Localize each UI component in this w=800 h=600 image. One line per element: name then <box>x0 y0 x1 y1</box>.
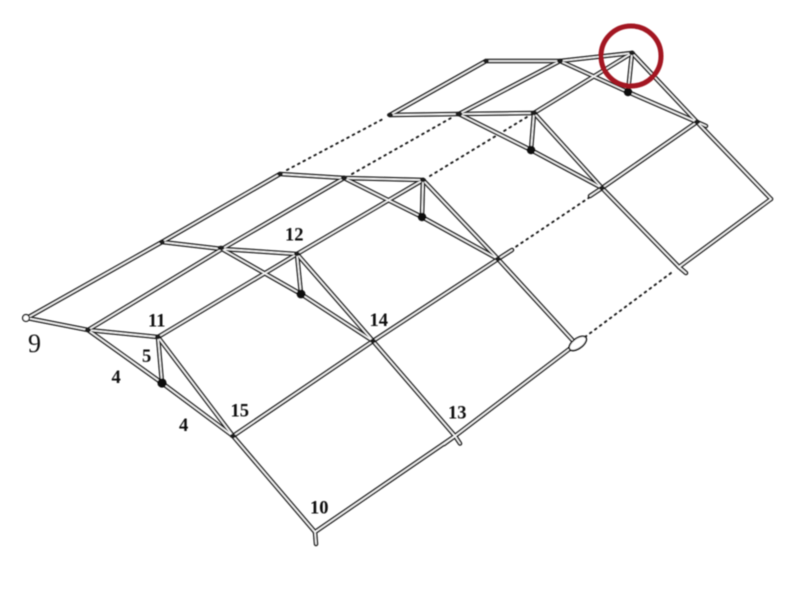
svg-text:15: 15 <box>231 402 250 422</box>
svg-text:4: 4 <box>112 368 121 388</box>
svg-text:13: 13 <box>448 403 467 423</box>
svg-text:12: 12 <box>285 225 304 245</box>
svg-text:9: 9 <box>28 329 41 358</box>
svg-text:14: 14 <box>370 311 389 331</box>
svg-text:4: 4 <box>179 416 188 436</box>
svg-text:5: 5 <box>142 347 151 367</box>
svg-text:10: 10 <box>310 499 329 519</box>
svg-text:11: 11 <box>148 312 165 332</box>
